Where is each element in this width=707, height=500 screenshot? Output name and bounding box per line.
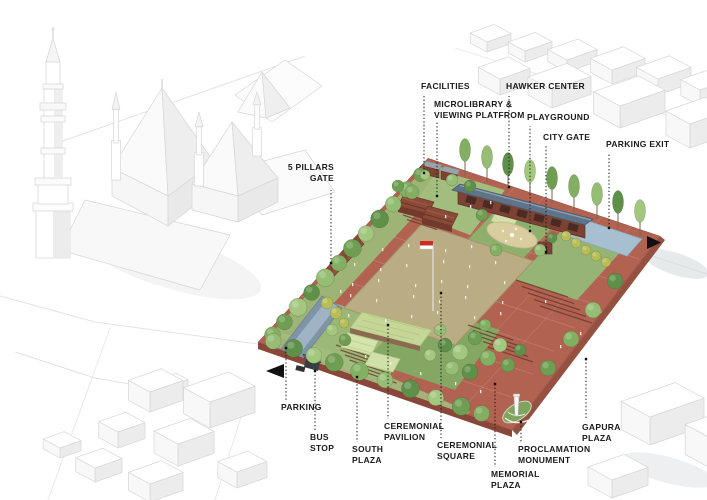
label-proclamation-monument: PROCLAMATIONMONUMENT xyxy=(518,444,590,465)
label-gapura-plaza: GAPURAPLAZA xyxy=(582,422,621,443)
site-entry-arrow-west xyxy=(266,364,284,378)
label-ceremonial-square: CEREMONIALSQUARE xyxy=(437,440,497,461)
label-city-gate: CITY GATE xyxy=(543,132,590,143)
label-playground: PLAYGROUND xyxy=(527,112,590,123)
label-five-pillars-gate: 5 PILLARSGATE xyxy=(281,162,334,183)
label-microlibrary: MICROLIBRARY &VIEWING PLATFROM xyxy=(434,99,525,120)
site-diagram: FACILITIES MICROLIBRARY &VIEWING PLATFRO… xyxy=(0,0,707,500)
label-facilities: FACILITIES xyxy=(421,81,470,92)
label-parking-exit: PARKING EXIT xyxy=(606,139,669,150)
label-bus-stop: BUSSTOP xyxy=(310,432,334,453)
label-memorial-plaza: MEMORIALPLAZA xyxy=(491,469,540,490)
label-south-plaza: SOUTHPLAZA xyxy=(352,444,383,465)
context-buildings-southwest xyxy=(43,369,267,500)
label-ceremonial-pavilion: CEREMONIALPAVILION xyxy=(384,421,444,442)
label-hawker-center: HAWKER CENTER xyxy=(506,81,585,92)
label-parking: PARKING xyxy=(281,402,322,413)
mosque-massing xyxy=(33,28,335,290)
